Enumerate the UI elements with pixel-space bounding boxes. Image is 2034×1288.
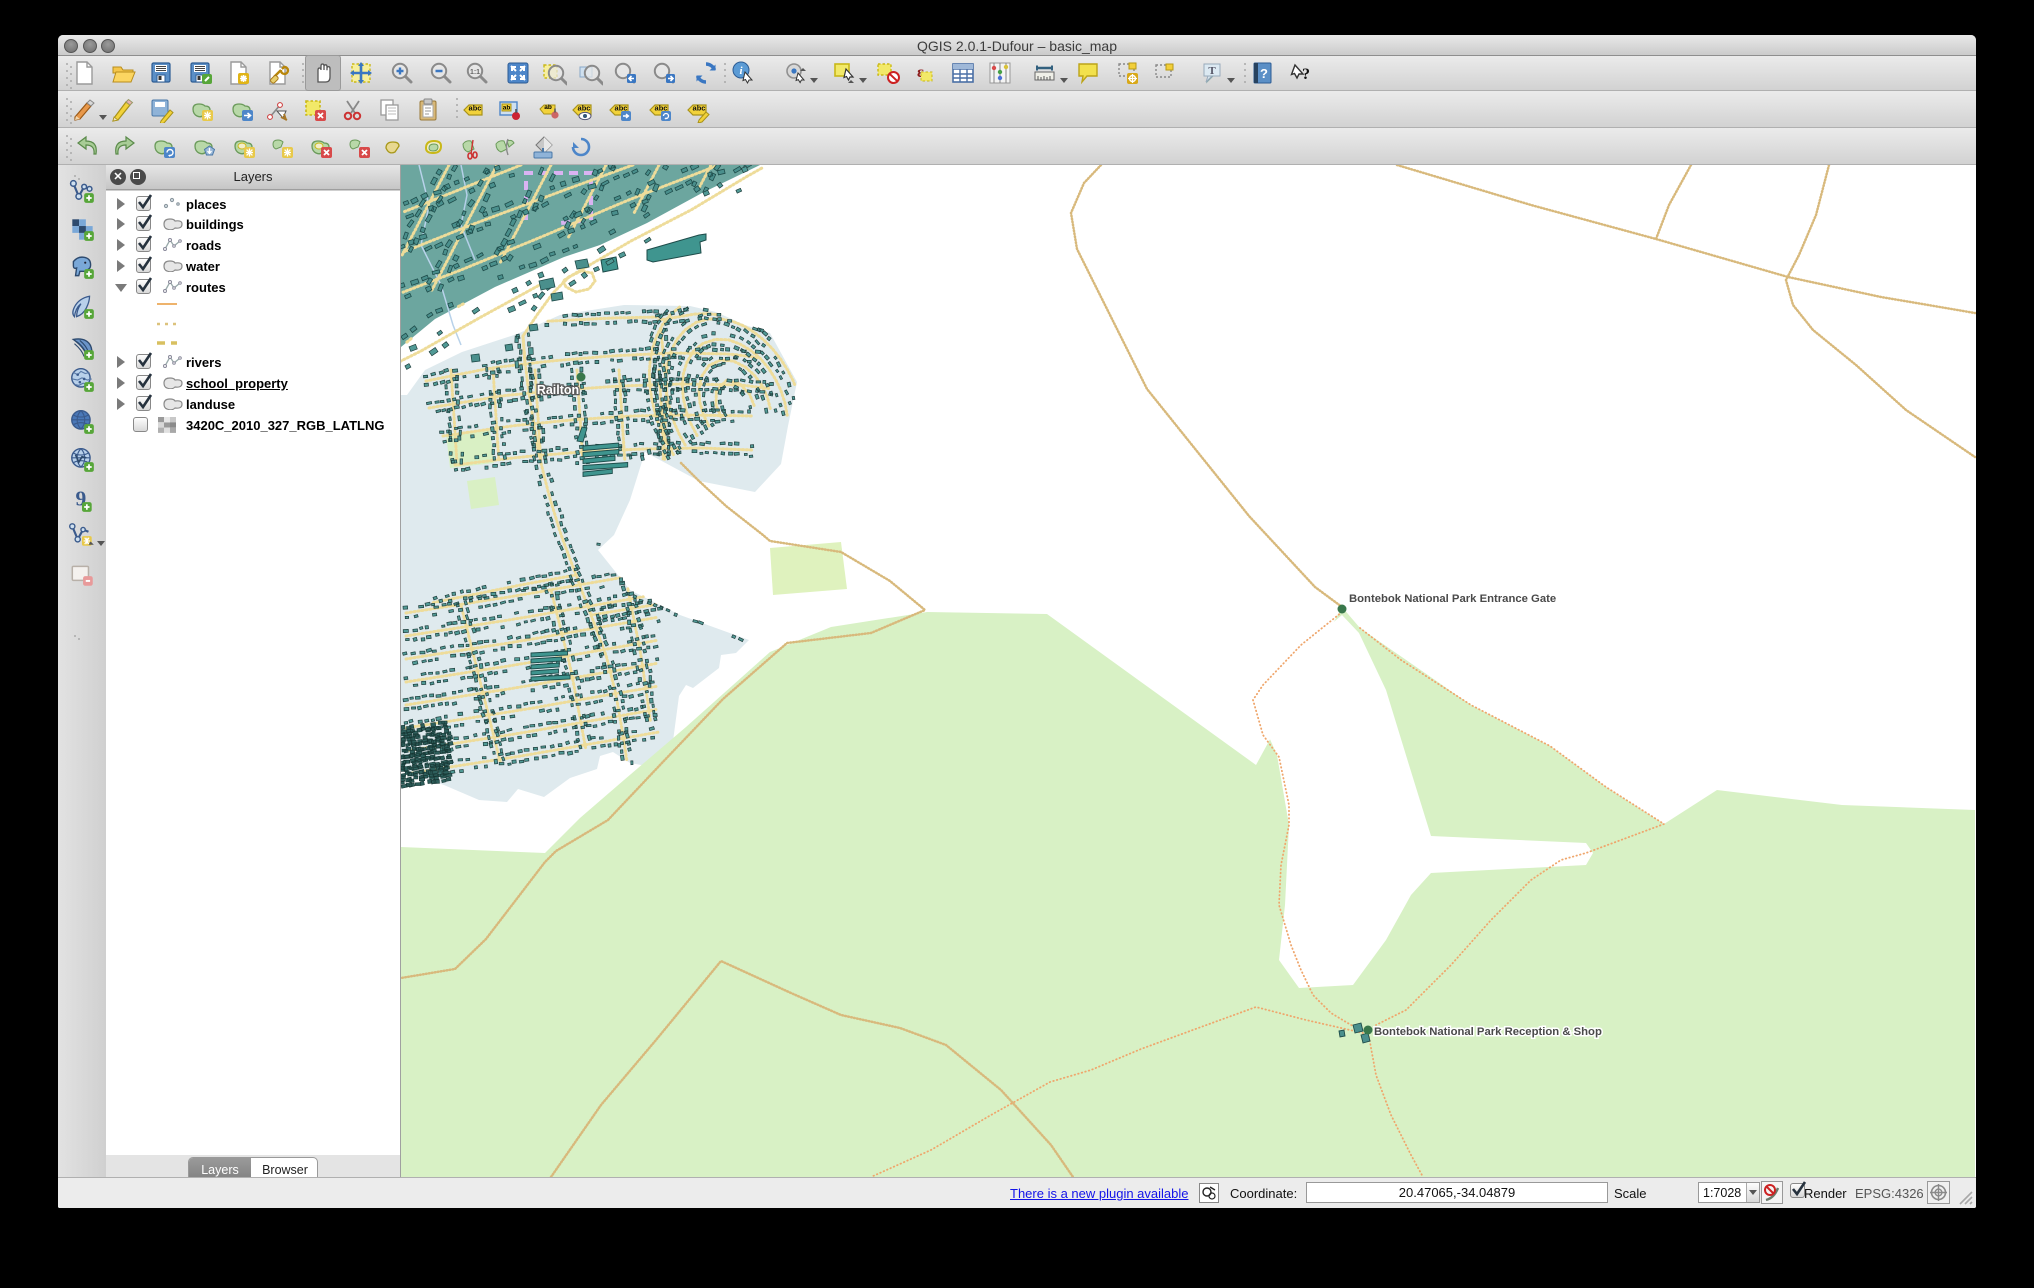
- svg-text:T: T: [1208, 65, 1216, 77]
- svg-text:1:1: 1:1: [470, 69, 480, 76]
- svg-text:ab: ab: [544, 104, 552, 111]
- svg-text:Railton: Railton: [537, 383, 579, 397]
- svg-text:?: ?: [1302, 66, 1310, 83]
- svg-text:Bontebok National Park Recepti: Bontebok National Park Reception & Shop: [1374, 1026, 1602, 1038]
- svg-text:ab: ab: [503, 105, 511, 112]
- svg-text:abc: abc: [578, 104, 591, 113]
- svg-text:abc: abc: [693, 104, 706, 113]
- svg-text:Bontebok National Park Entranc: Bontebok National Park Entrance Gate: [1349, 593, 1556, 605]
- svg-text:abc: abc: [469, 104, 482, 113]
- svg-text:?: ?: [1260, 66, 1268, 81]
